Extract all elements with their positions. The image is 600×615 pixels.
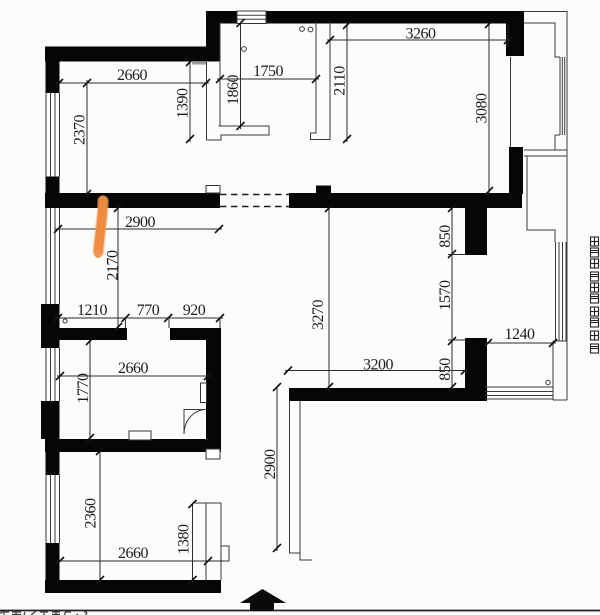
svg-text:850: 850 xyxy=(437,358,454,381)
svg-text:1390: 1390 xyxy=(175,88,192,119)
svg-text:2900: 2900 xyxy=(125,214,156,231)
svg-text:1380: 1380 xyxy=(176,524,193,555)
svg-text:2900: 2900 xyxy=(262,449,279,480)
svg-text:2170: 2170 xyxy=(105,250,122,281)
svg-text:920: 920 xyxy=(183,302,206,319)
svg-text:2660: 2660 xyxy=(117,67,148,84)
svg-text:3270: 3270 xyxy=(310,300,327,331)
svg-text:3080: 3080 xyxy=(474,93,491,124)
svg-text:2660: 2660 xyxy=(118,545,149,562)
svg-text:1750: 1750 xyxy=(253,63,284,80)
svg-text:2370: 2370 xyxy=(72,115,89,146)
svg-text:2660: 2660 xyxy=(118,360,149,377)
svg-text:2110: 2110 xyxy=(332,66,349,96)
svg-text:3200: 3200 xyxy=(363,357,394,374)
svg-text:850: 850 xyxy=(437,225,454,248)
svg-text:1770: 1770 xyxy=(75,373,92,404)
svg-text:3260: 3260 xyxy=(406,26,437,43)
svg-text:770: 770 xyxy=(137,302,160,319)
svg-text:1570: 1570 xyxy=(437,280,454,311)
svg-text:1240: 1240 xyxy=(505,326,536,343)
svg-text:2360: 2360 xyxy=(83,498,100,529)
svg-text:1210: 1210 xyxy=(77,302,108,319)
